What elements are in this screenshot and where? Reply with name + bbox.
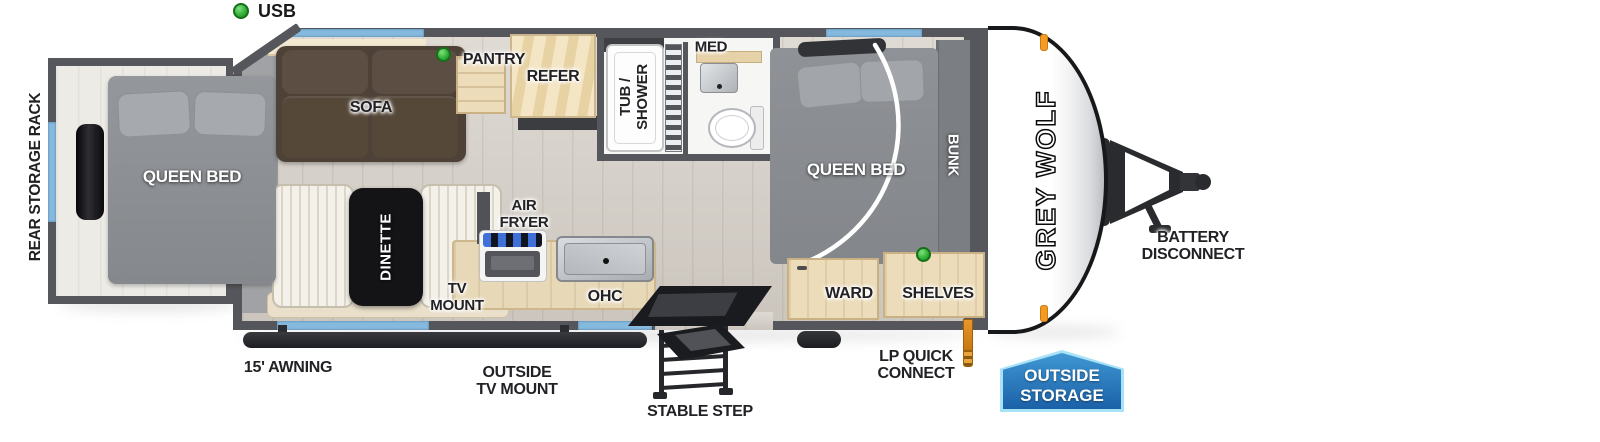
bath-sink <box>700 63 738 93</box>
shelves-label: SHELVES <box>902 285 973 303</box>
cooktop-burners <box>483 233 542 247</box>
clearance-light <box>1040 34 1048 51</box>
usb-legend-icon <box>233 3 249 19</box>
bath-divider-wall <box>683 42 688 154</box>
refer-label: REFER <box>527 68 580 86</box>
entry-door-inner <box>646 292 750 318</box>
floorplan-canvas: QUEEN BED REAR STORAGE RACK SOFA PANTRY … <box>0 0 1600 442</box>
toilet-seat <box>715 115 749 141</box>
rear-queen-bed-label: QUEEN BED <box>143 167 241 187</box>
usb-legend-label: USB <box>258 1 296 22</box>
faucet <box>603 258 609 264</box>
kitchen-sink <box>556 236 654 282</box>
bunk-label: BUNK <box>945 134 962 176</box>
oven-front <box>485 251 540 277</box>
hitch-graphic <box>1095 130 1213 238</box>
lp-connector <box>963 319 973 351</box>
stable-step-label: STABLE STEP <box>647 403 753 421</box>
exterior-speaker <box>797 331 841 348</box>
sofa-back-cushion <box>282 50 368 94</box>
tub-shower-label: TUB / SHOWER <box>617 64 651 130</box>
rear-storage-rack-label: REAR STORAGE RACK <box>27 93 45 262</box>
pantry-label: PANTRY <box>463 51 525 69</box>
ward-label: WARD <box>825 285 873 303</box>
usb-indicator <box>436 47 451 62</box>
pillow <box>117 90 191 138</box>
stable-step-graphic <box>645 322 757 406</box>
usb-indicator <box>916 247 931 262</box>
clearance-light <box>1040 305 1048 322</box>
range-cooktop <box>479 230 547 282</box>
rear-window <box>48 122 56 222</box>
awning-bar <box>243 332 647 348</box>
awning-label: 15' AWNING <box>244 359 332 377</box>
storage-rack-bar <box>76 124 104 220</box>
refer-base <box>518 116 598 130</box>
window-strip <box>277 321 429 330</box>
lp-quick-connect-label: LP QUICK CONNECT <box>877 348 954 382</box>
lp-connector-tip <box>963 351 973 367</box>
tv-mount-label: TV MOUNT <box>430 280 484 314</box>
toilet <box>708 108 756 148</box>
outside-storage-badge: OUTSIDE STORAGE <box>1000 350 1124 412</box>
dinette-bench <box>272 184 354 308</box>
med-label: MED <box>695 39 727 56</box>
wardrobe-handle <box>797 266 807 270</box>
faucet <box>717 84 722 89</box>
brand-logo: GREY WOLF <box>1031 70 1061 290</box>
sofa-label: SOFA <box>350 99 392 117</box>
shower-door <box>665 44 682 152</box>
outside-tv-mount-label: OUTSIDE TV MOUNT <box>476 364 557 398</box>
badge-text: OUTSIDE STORAGE <box>1000 366 1124 406</box>
oven-window <box>491 256 534 270</box>
ohc-label: OHC <box>588 288 623 306</box>
air-fryer-label: AIR FRYER <box>500 197 549 231</box>
pillow <box>193 91 266 137</box>
front-queen-bed-label: QUEEN BED <box>807 160 905 180</box>
dinette-label: DINETTE <box>378 213 395 281</box>
battery-disconnect-label: BATTERY DISCONNECT <box>1142 229 1245 263</box>
